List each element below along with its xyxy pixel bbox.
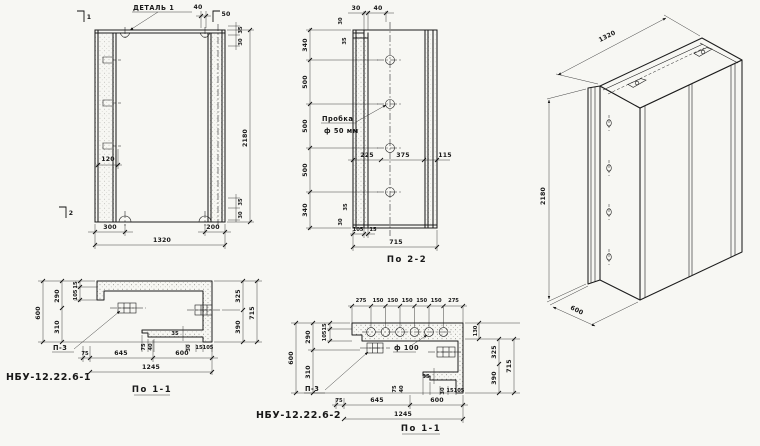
section-title: По 2-2 [387, 255, 427, 265]
dim-label: 290 [54, 289, 61, 303]
dim-label: 500 [302, 163, 309, 177]
part-number-label: НБУ-12.22.6-1 [6, 372, 91, 383]
dim-label: 35 [343, 203, 349, 211]
dim-label: 340 [302, 203, 309, 217]
dim-label: 75 [141, 343, 147, 351]
hole-callout: ф 100 [394, 344, 419, 352]
dim-label: 30 [238, 38, 244, 46]
dim-label: 150 [402, 298, 413, 304]
dim-label: 225 [360, 152, 374, 159]
dim-label: 30 [351, 5, 361, 12]
dim-label: 290 [305, 330, 312, 344]
dim-label: 150 [387, 298, 398, 304]
dim-label: 15 [73, 281, 79, 289]
detail-callout-label: ДЕТАЛЬ 1 [133, 4, 174, 12]
dim-label: 150 [373, 298, 384, 304]
dim-label: 35 [238, 198, 244, 206]
dim-label: 105 [73, 289, 79, 300]
section-title: По 1-1 [401, 424, 441, 434]
dim-label: 2180 [242, 128, 249, 147]
dim-label: 325 [491, 345, 498, 359]
section-title: По 1-1 [132, 385, 172, 395]
dim-label: 30 [440, 387, 446, 395]
svg-text:1: 1 [87, 14, 92, 21]
dim-label: 105 [353, 227, 364, 233]
dim-label: 40 [193, 4, 203, 11]
dim-label: 15 [369, 227, 377, 233]
dim-label: 715 [249, 306, 256, 320]
dim-label: 300 [103, 224, 117, 231]
dim-label: 115 [438, 152, 452, 159]
dim-label: 50 [221, 11, 231, 18]
dim-label: 150 [431, 298, 442, 304]
dim-label: 40 [399, 385, 405, 393]
dim-label: 35 [342, 37, 348, 45]
dim-label: 600 [288, 351, 295, 365]
dim-label: 1245 [394, 411, 412, 418]
dim-label: 645 [114, 350, 128, 357]
dim-label: 645 [370, 397, 384, 404]
blueprint-sheet: 120 ДЕТАЛЬ 1 1 2 40 50 35 30 35 30 300 2… [0, 0, 760, 446]
plug-label-line1: Пробка [322, 115, 353, 123]
dim-label: 500 [302, 75, 309, 89]
dim-label: 1320 [153, 237, 172, 244]
plate-callout: П-3 [305, 385, 319, 393]
dim-label: 715 [389, 239, 403, 246]
dim-label: 340 [302, 38, 309, 52]
dim-label: 15 [322, 323, 328, 331]
dim-label: 75 [335, 398, 343, 404]
dim-label: 105 [322, 330, 328, 341]
dim-label: 35 [171, 331, 179, 337]
dim-label: 600 [35, 306, 42, 320]
technical-drawing: 120 ДЕТАЛЬ 1 1 2 40 50 35 30 35 30 300 2… [0, 0, 760, 446]
dim-label: 375 [396, 152, 410, 159]
plug-label-line2: ф 50 мм [324, 127, 359, 135]
dim-label: 130 [473, 325, 479, 336]
dim-label: 30 [238, 211, 244, 219]
dim-label: 35 [422, 374, 430, 380]
dim-label: 390 [235, 320, 242, 334]
dim-label: 2180 [540, 186, 547, 205]
svg-text:2: 2 [69, 210, 74, 217]
dim-label: 275 [356, 298, 367, 304]
dim-label: 75 [81, 351, 89, 357]
dim-label: 600 [430, 397, 444, 404]
dim-label: 30 [338, 218, 344, 226]
dim-label: 150 [416, 298, 427, 304]
dim-label: 200 [206, 224, 220, 231]
dim-label: 30 [338, 17, 344, 25]
part-number-label: НБУ-12.22.6-2 [256, 410, 341, 421]
dim-label: 275 [448, 298, 459, 304]
dim-label: 75 [392, 385, 398, 393]
dim-label: 1245 [142, 364, 160, 371]
plate-callout: П-3 [53, 344, 67, 352]
dim-label: 105 [454, 388, 465, 394]
dim-label: 325 [235, 289, 242, 303]
dim-label: 715 [506, 359, 513, 373]
iso-flange-strip [588, 86, 600, 284]
dim-label: 120 [101, 156, 115, 163]
dim-label: 600 [175, 350, 189, 357]
dim-label: 500 [302, 119, 309, 133]
dim-label: 310 [305, 365, 312, 379]
iso-front-face [600, 86, 640, 300]
dim-label: 40 [373, 5, 383, 12]
dim-label: 310 [54, 320, 61, 334]
dim-label: 390 [491, 371, 498, 385]
